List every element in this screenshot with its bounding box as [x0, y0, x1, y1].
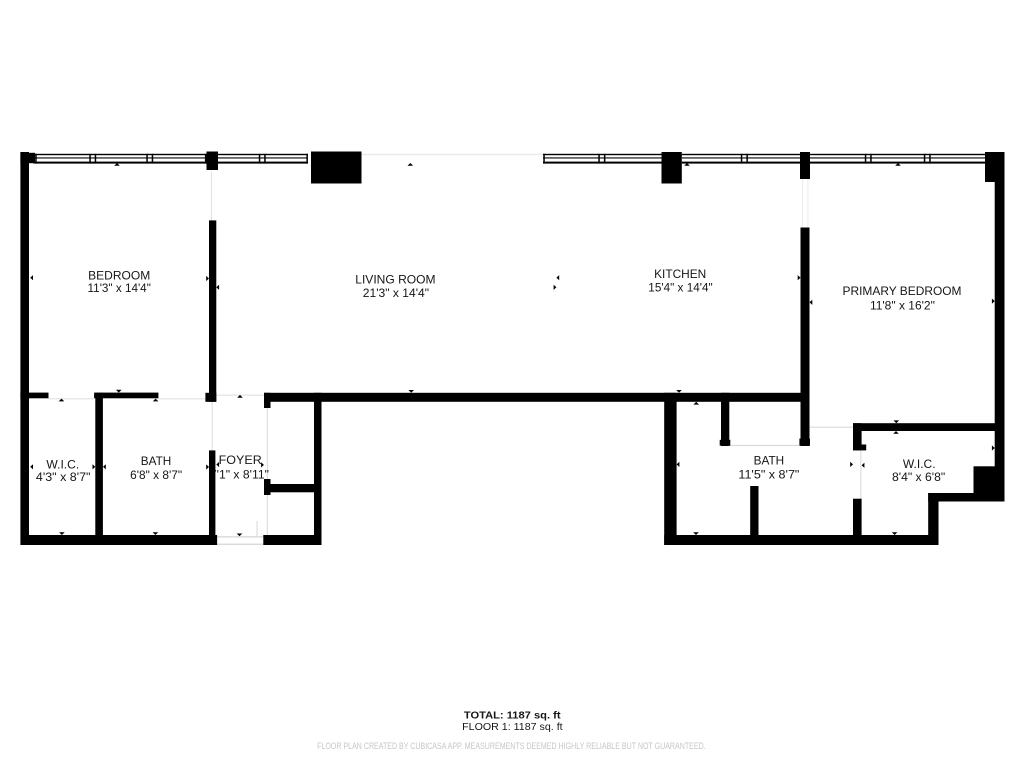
- svg-text:KITCHEN: KITCHEN: [654, 267, 706, 281]
- svg-text:LIVING ROOM: LIVING ROOM: [355, 273, 435, 287]
- svg-text:FLOOR PLAN CREATED BY CUBICASA: FLOOR PLAN CREATED BY CUBICASA APP. MEAS…: [317, 741, 706, 751]
- svg-text:11'8" x 16'2": 11'8" x 16'2": [870, 298, 935, 312]
- svg-text:11'5" x 8'7": 11'5" x 8'7": [738, 467, 799, 481]
- svg-text:BEDROOM: BEDROOM: [88, 268, 150, 282]
- svg-text:FLOOR 1: 1187 sq. ft: FLOOR 1: 1187 sq. ft: [462, 721, 563, 733]
- svg-text:BATH: BATH: [754, 453, 785, 467]
- svg-text:PRIMARY BEDROOM: PRIMARY BEDROOM: [843, 284, 962, 298]
- svg-text:7'1" x 8'11": 7'1" x 8'11": [210, 468, 269, 482]
- svg-text:15'4" x 14'4": 15'4" x 14'4": [648, 281, 712, 295]
- svg-text:TOTAL: 1187 sq. ft: TOTAL: 1187 sq. ft: [464, 710, 561, 721]
- svg-text:6'8" x 8'7": 6'8" x 8'7": [130, 468, 182, 482]
- svg-text:8'4" x 6'8": 8'4" x 6'8": [892, 470, 945, 484]
- svg-text:21'3" x 14'4": 21'3" x 14'4": [363, 286, 429, 300]
- svg-text:4'3" x 8'7": 4'3" x 8'7": [36, 470, 91, 484]
- svg-text:FOYER: FOYER: [219, 453, 262, 467]
- svg-text:BATH: BATH: [141, 454, 172, 468]
- svg-text:11'3" x 14'4": 11'3" x 14'4": [88, 281, 151, 295]
